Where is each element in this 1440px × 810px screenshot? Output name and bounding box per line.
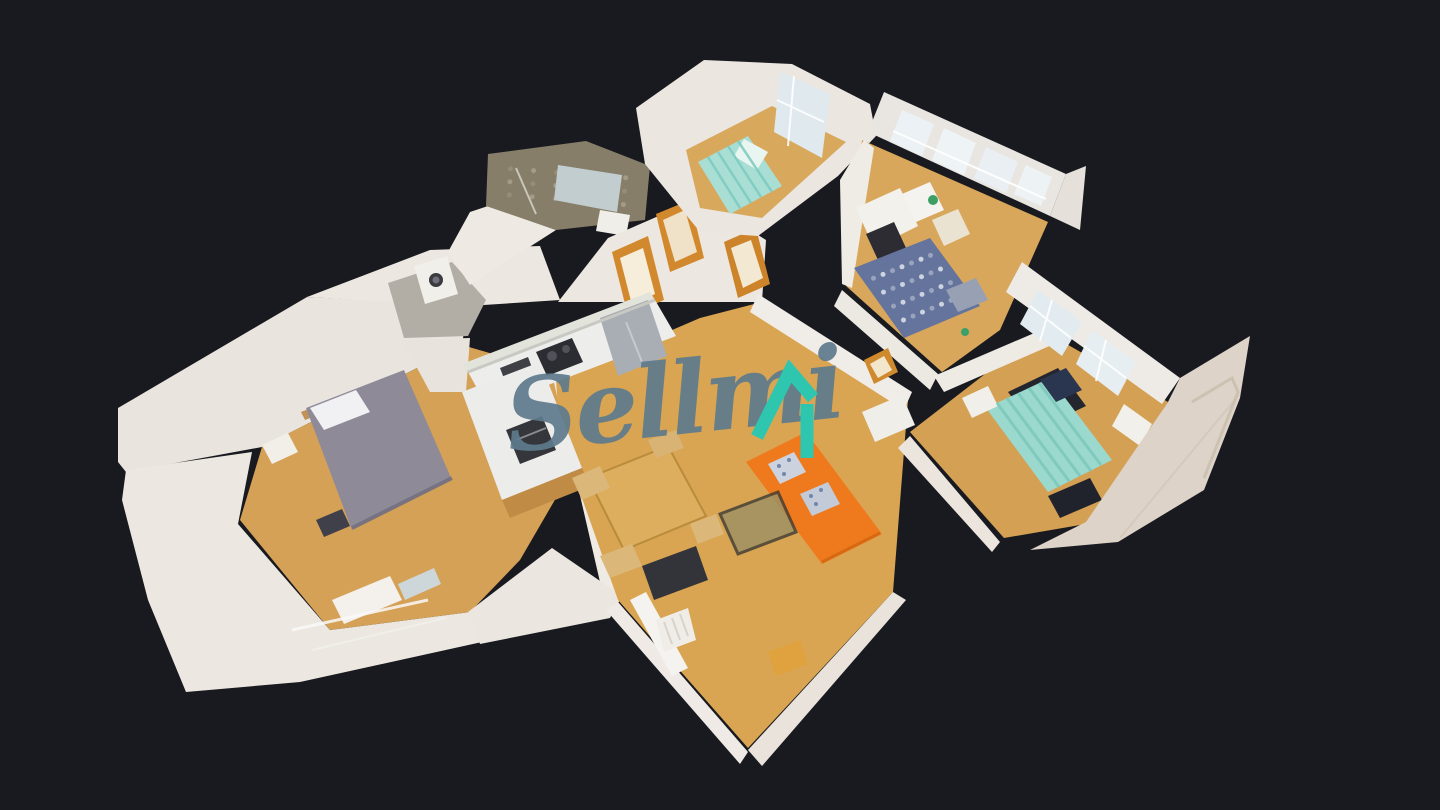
dollhouse-scene-canvas[interactable] [0,0,1440,810]
office-bed-checker-pattern-dot [901,318,906,323]
office-bed-checker-pattern-dot [900,264,905,269]
bath-tile-wall-pattern-dot [623,175,628,180]
bath-tile-wall-pattern-dot [621,202,626,207]
bath-tile-wall-pattern-dot [622,189,627,194]
dollhouse-3d-viewer[interactable]: Sellmi [0,0,1440,810]
office-bed-checker-pattern-dot [919,274,924,279]
office-bed-checker-pattern-dot [930,306,935,311]
office-bed-checker-pattern-dot [890,268,895,273]
office-bed-checker-pattern-dot [881,272,886,277]
office-bed-checker-pattern-dot [929,288,934,293]
scene-detail-dot [809,494,813,498]
office-bed-checker-pattern-dot [871,276,876,281]
office-bed-checker-pattern-dot [909,261,914,266]
bath-tile-wall-pattern-dot [530,181,535,186]
bath-tile-wall-pattern-dot [531,168,536,173]
scene-detail-dot [787,458,791,462]
scene-detail-dot [928,195,938,205]
office-bed-checker-pattern-dot [919,257,924,262]
office-bed-checker-pattern-dot [901,300,906,305]
office-bed-checker-pattern-dot [948,280,953,285]
office-bed-checker-pattern-dot [910,278,915,283]
office-bed-checker-pattern-dot [900,282,905,287]
scene-detail-dot [547,351,557,361]
scene-detail-dot [777,464,781,468]
office-bed-checker-pattern-dot [939,284,944,289]
scene-detail-dot [433,277,440,284]
scene-detail-dot [782,472,786,476]
office-bed-checker-pattern-dot [938,267,943,272]
office-bed-checker-pattern-dot [891,286,896,291]
bath-tile-wall-pattern-dot [508,166,513,171]
office-bed-checker-pattern-dot [911,314,916,319]
scene-detail-dot [819,488,823,492]
office-bed-checker-pattern-dot [881,290,886,295]
bath-tile-wall-pattern-dot [507,179,512,184]
scene-detail-dot [562,345,570,353]
office-bed-checker-pattern-dot [929,270,934,275]
office-bed-checker-pattern-dot [920,310,925,315]
office-bed-checker-pattern-dot [920,292,925,297]
scene-detail-dot [961,328,969,336]
office-bed-checker-pattern-dot [891,304,896,309]
bath-tile-wall-pattern-dot [507,192,512,197]
office-bed-checker-pattern-dot [928,253,933,258]
scene-detail-dot [814,502,818,506]
office-bed-checker-pattern-dot [939,302,944,307]
office-bed-checker-pattern-dot [910,296,915,301]
